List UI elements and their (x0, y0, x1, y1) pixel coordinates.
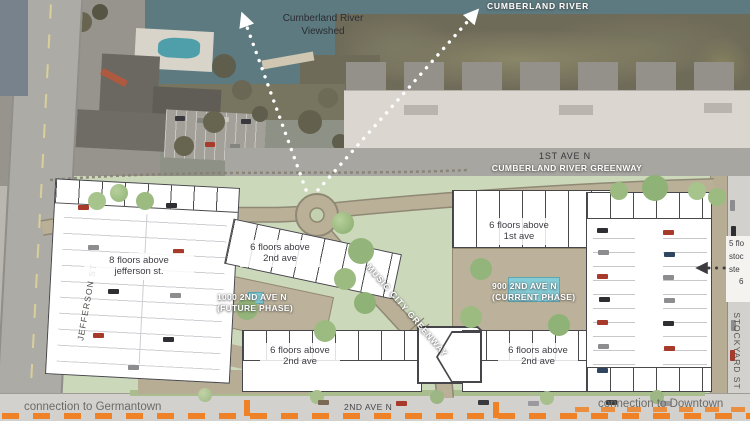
viewshed-line2: Viewshed (301, 26, 344, 37)
callout-line: stoc (729, 252, 744, 261)
label-line: jefferson st. (115, 266, 164, 277)
current-south-label: 6 floors above 2nd ave (498, 343, 578, 370)
label-line: 2nd ave (283, 356, 317, 367)
stockyard-st-label: STOCKYARD ST (732, 311, 742, 391)
connection-germantown-label: connection to Germantown (24, 401, 161, 413)
label-line: 6 floors above (270, 345, 330, 356)
viewshed-line1: Cumberland River (283, 13, 364, 24)
callout-line: 6 (729, 277, 743, 286)
label-line: 6 floors above (489, 220, 549, 231)
label-line: 2nd ave (521, 356, 555, 367)
current-court-phase: (CURRENT PHASE) (492, 292, 602, 302)
label-line: 2nd ave (263, 253, 297, 264)
second-ave-label: 2ND AVE N (344, 402, 392, 412)
future-south-label: 6 floors above 2nd ave (260, 343, 340, 370)
future-court-name: 1000 2ND AVE N (217, 292, 327, 302)
west-building-label: 8 floors above jefferson st. (84, 253, 194, 280)
connection-dashed-line-right (575, 407, 750, 412)
connection-tick (493, 402, 499, 418)
callout-line: ste (729, 265, 740, 274)
cumberland-greenway-label: CUMBERLAND RIVER GREENWAY (487, 163, 647, 173)
annotation-overlay (0, 0, 750, 421)
callout-line: 5 flo (729, 239, 744, 248)
viewshed-dotted-left (243, 16, 306, 190)
label-line: 1st ave (504, 231, 535, 242)
east-cutoff-callout: 5 flo stoc ste 6 (726, 236, 750, 302)
future-north-label: 6 floors above 2nd ave (240, 240, 320, 267)
label-line: 6 floors above (508, 345, 568, 356)
current-north-label: 6 floors above 1st ave (478, 218, 560, 245)
connection-tick (244, 400, 250, 416)
viewshed-label: Cumberland River Viewshed (258, 13, 388, 38)
future-court-phase: (FUTURE PHASE) (217, 303, 327, 313)
site-plan-map: CUMBERLAND RIVER Cumberland River Viewsh… (0, 0, 750, 421)
label-line: 6 floors above (250, 242, 310, 253)
first-ave-label: 1ST AVE N (510, 151, 620, 161)
viewshed-dotted-right (318, 12, 476, 190)
current-court-name: 900 2ND AVE N (492, 281, 602, 291)
label-line: 8 floors above (109, 255, 169, 266)
cumberland-river-label: CUMBERLAND RIVER (468, 1, 608, 11)
connection-dashed-line (2, 413, 750, 419)
